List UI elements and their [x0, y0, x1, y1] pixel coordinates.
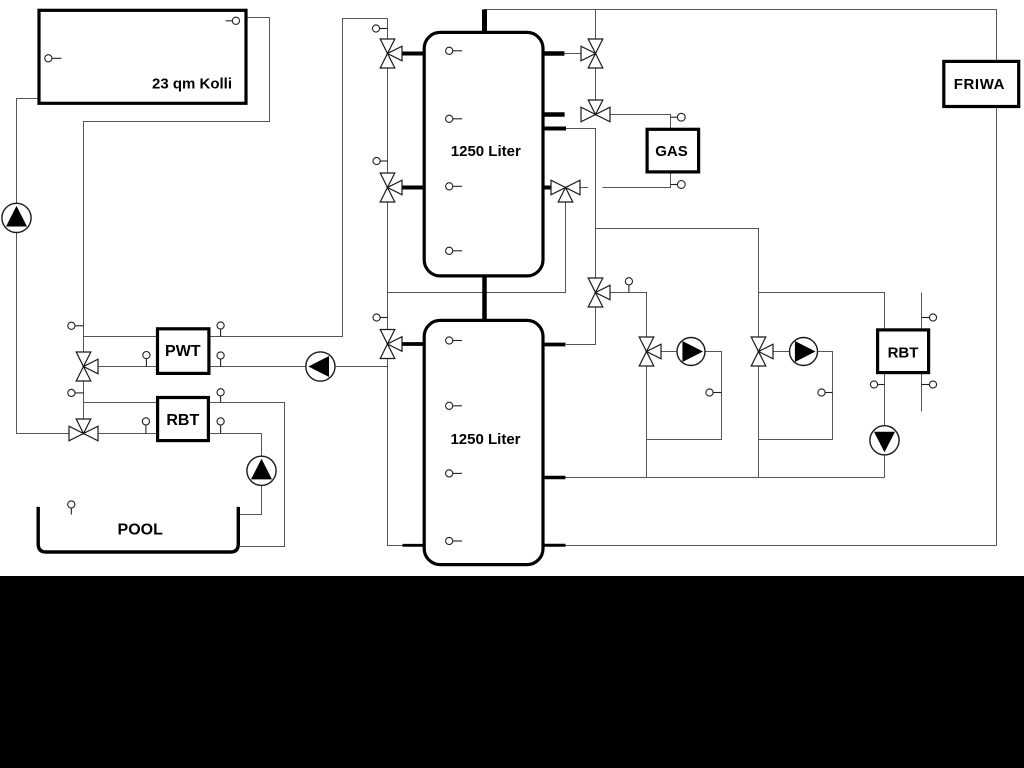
svg-text:1250 Liter: 1250 Liter	[450, 431, 520, 448]
svg-text:23 qm Kolli: 23 qm Kolli	[152, 76, 232, 93]
svg-text:1250 Liter: 1250 Liter	[451, 143, 521, 160]
svg-text:RBT: RBT	[166, 412, 199, 429]
svg-text:RBT: RBT	[888, 345, 919, 362]
svg-text:FRIWA: FRIWA	[954, 76, 1005, 93]
svg-text:POOL: POOL	[118, 522, 164, 539]
svg-text:PWT: PWT	[165, 343, 201, 360]
svg-text:GAS: GAS	[655, 143, 688, 160]
